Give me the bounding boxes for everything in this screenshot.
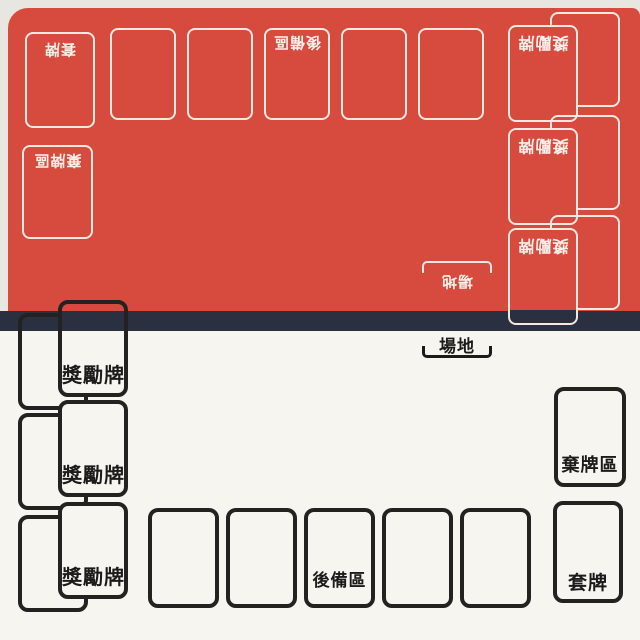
player-discard-slot[interactable]: 棄牌區 [554,387,626,487]
opponent-discard-label: 棄牌區 [24,152,91,169]
opponent-stadium-label: 場地 [422,273,492,290]
opponent-deck-slot[interactable]: 套牌 [25,32,95,128]
opponent-discard-slot[interactable]: 棄牌區 [22,145,93,239]
opponent-stadium-zone[interactable]: 場地 [422,261,492,289]
player-stadium-bracket-icon [422,346,492,358]
opponent-bench-slot-2[interactable] [187,28,253,120]
opponent-prize-slot-3[interactable]: 獎勵牌 [508,228,578,325]
opponent-deck-label: 套牌 [27,41,93,58]
opponent-stadium-bracket-icon [422,261,492,273]
opponent-prize-label-1: 獎勵牌 [510,34,576,52]
player-stadium-zone[interactable]: 場地 [422,332,492,358]
player-prize-label-1: 獎勵牌 [62,364,124,386]
player-bench-label: 後備區 [308,572,371,591]
player-deck-label: 套牌 [557,573,619,594]
player-discard-label: 棄牌區 [558,456,622,476]
player-bench-slot-2[interactable] [226,508,297,608]
opponent-bench-slot-5[interactable] [418,28,484,120]
opponent-bench-slot-1[interactable] [110,28,176,120]
player-bench-slot-3[interactable]: 後備區 [304,508,375,608]
player-deck-slot[interactable]: 套牌 [553,501,623,603]
opponent-prize-label-2: 獎勵牌 [510,137,576,155]
player-bench-slot-5[interactable] [460,508,531,608]
player-prize-label-2: 獎勵牌 [62,464,124,486]
opponent-prize-label-3: 獎勵牌 [510,237,576,255]
player-prize-slot-3[interactable]: 獎勵牌 [58,502,128,599]
opponent-bench-slot-4[interactable] [341,28,407,120]
opponent-bench-label: 後備區 [266,34,328,51]
opponent-bench-slot-3[interactable]: 後備區 [264,28,330,120]
playmat-photo: 套牌 棄牌區 後備區 獎勵牌 獎勵牌 獎勵牌 場地 獎勵牌 獎勵牌 獎勵牌 [0,0,640,640]
opponent-prize-slot-1[interactable]: 獎勵牌 [508,25,578,122]
opponent-prize-slot-2[interactable]: 獎勵牌 [508,128,578,225]
player-bench-slot-1[interactable] [148,508,219,608]
player-bench-slot-4[interactable] [382,508,453,608]
player-prize-slot-1[interactable]: 獎勵牌 [58,300,128,397]
player-prize-label-3: 獎勵牌 [62,566,124,588]
player-prize-slot-2[interactable]: 獎勵牌 [58,400,128,497]
